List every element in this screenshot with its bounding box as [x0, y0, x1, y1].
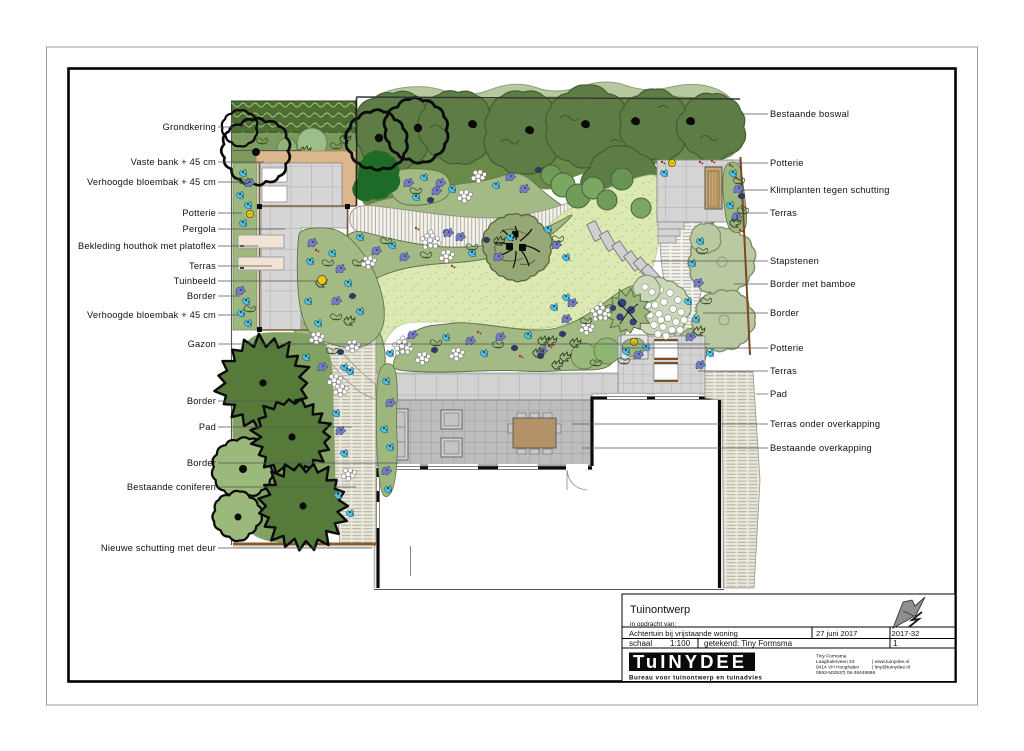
svg-text:Bekleding houthok met platofle: Bekleding houthok met platoflex	[78, 241, 216, 251]
svg-text:Border: Border	[187, 458, 216, 468]
svg-text:Bureau voor tuinontwerp en tui: Bureau voor tuinontwerp en tuinadvies	[629, 675, 762, 682]
svg-text:Verhoogde bloembak + 45 cm: Verhoogde bloembak + 45 cm	[87, 177, 216, 187]
svg-text:Terras onder overkapping: Terras onder overkapping	[770, 419, 880, 429]
svg-text:2017-32: 2017-32	[892, 629, 920, 638]
svg-text:Klimplanten tegen schutting: Klimplanten tegen schutting	[770, 185, 890, 195]
svg-text:Potterie: Potterie	[182, 208, 216, 218]
svg-text:Border: Border	[770, 308, 799, 318]
svg-text:Bestaande boswal: Bestaande boswal	[770, 109, 849, 119]
svg-text:Gazon: Gazon	[188, 339, 216, 349]
svg-text:Pergola: Pergola	[183, 224, 217, 234]
svg-text:| www.tuinydee.nl: | www.tuinydee.nl	[872, 659, 909, 665]
svg-text:Terras: Terras	[770, 366, 797, 376]
svg-text:| tiny@tuinydee.nl: | tiny@tuinydee.nl	[872, 665, 910, 671]
svg-text:9414 VH Hooghalen: 9414 VH Hooghalen	[816, 665, 860, 671]
svg-text:Bestaande coniferen: Bestaande coniferen	[127, 482, 216, 492]
svg-text:1:100: 1:100	[670, 639, 691, 648]
svg-text:Laaghalerveen 24: Laaghalerveen 24	[816, 659, 855, 665]
svg-text:Tuinbeeld: Tuinbeeld	[174, 276, 216, 286]
svg-text:Nieuwe schutting met deur: Nieuwe schutting met deur	[101, 543, 216, 553]
svg-text:Tuinontwerp: Tuinontwerp	[630, 604, 690, 616]
svg-text:getekend: Tiny Formsma: getekend: Tiny Formsma	[704, 639, 793, 648]
svg-text:Achtertuin bij vrijstaande won: Achtertuin bij vrijstaande woning	[629, 629, 738, 638]
svg-text:Vaste bank + 45 cm: Vaste bank + 45 cm	[131, 157, 216, 167]
svg-text:Potterie: Potterie	[770, 343, 804, 353]
svg-text:Border met bamboe: Border met bamboe	[770, 279, 856, 289]
svg-text:Pad: Pad	[770, 389, 787, 399]
svg-text:Bestaande overkapping: Bestaande overkapping	[770, 443, 872, 453]
svg-text:0593-502937| 06-38448866: 0593-502937| 06-38448866	[816, 670, 875, 676]
svg-text:Tiny Formsma: Tiny Formsma	[816, 654, 847, 660]
svg-text:Stapstenen: Stapstenen	[770, 256, 819, 266]
svg-text:Border: Border	[187, 396, 216, 406]
svg-text:Border: Border	[187, 291, 216, 301]
svg-text:27 juni 2017: 27 juni 2017	[816, 629, 857, 638]
svg-text:1: 1	[893, 639, 898, 648]
svg-text:Pad: Pad	[199, 422, 216, 432]
svg-text:Verhoogde bloembak + 45 cm: Verhoogde bloembak + 45 cm	[87, 310, 216, 320]
svg-text:schaal: schaal	[629, 639, 652, 648]
svg-text:Grondkering: Grondkering	[163, 122, 216, 132]
svg-text:Terras: Terras	[189, 261, 216, 271]
svg-text:Potterie: Potterie	[770, 158, 804, 168]
svg-text:Terras: Terras	[770, 208, 797, 218]
svg-text:in opdracht van:: in opdracht van:	[630, 621, 676, 628]
svg-text:TuINYDEE: TuINYDEE	[633, 651, 747, 672]
